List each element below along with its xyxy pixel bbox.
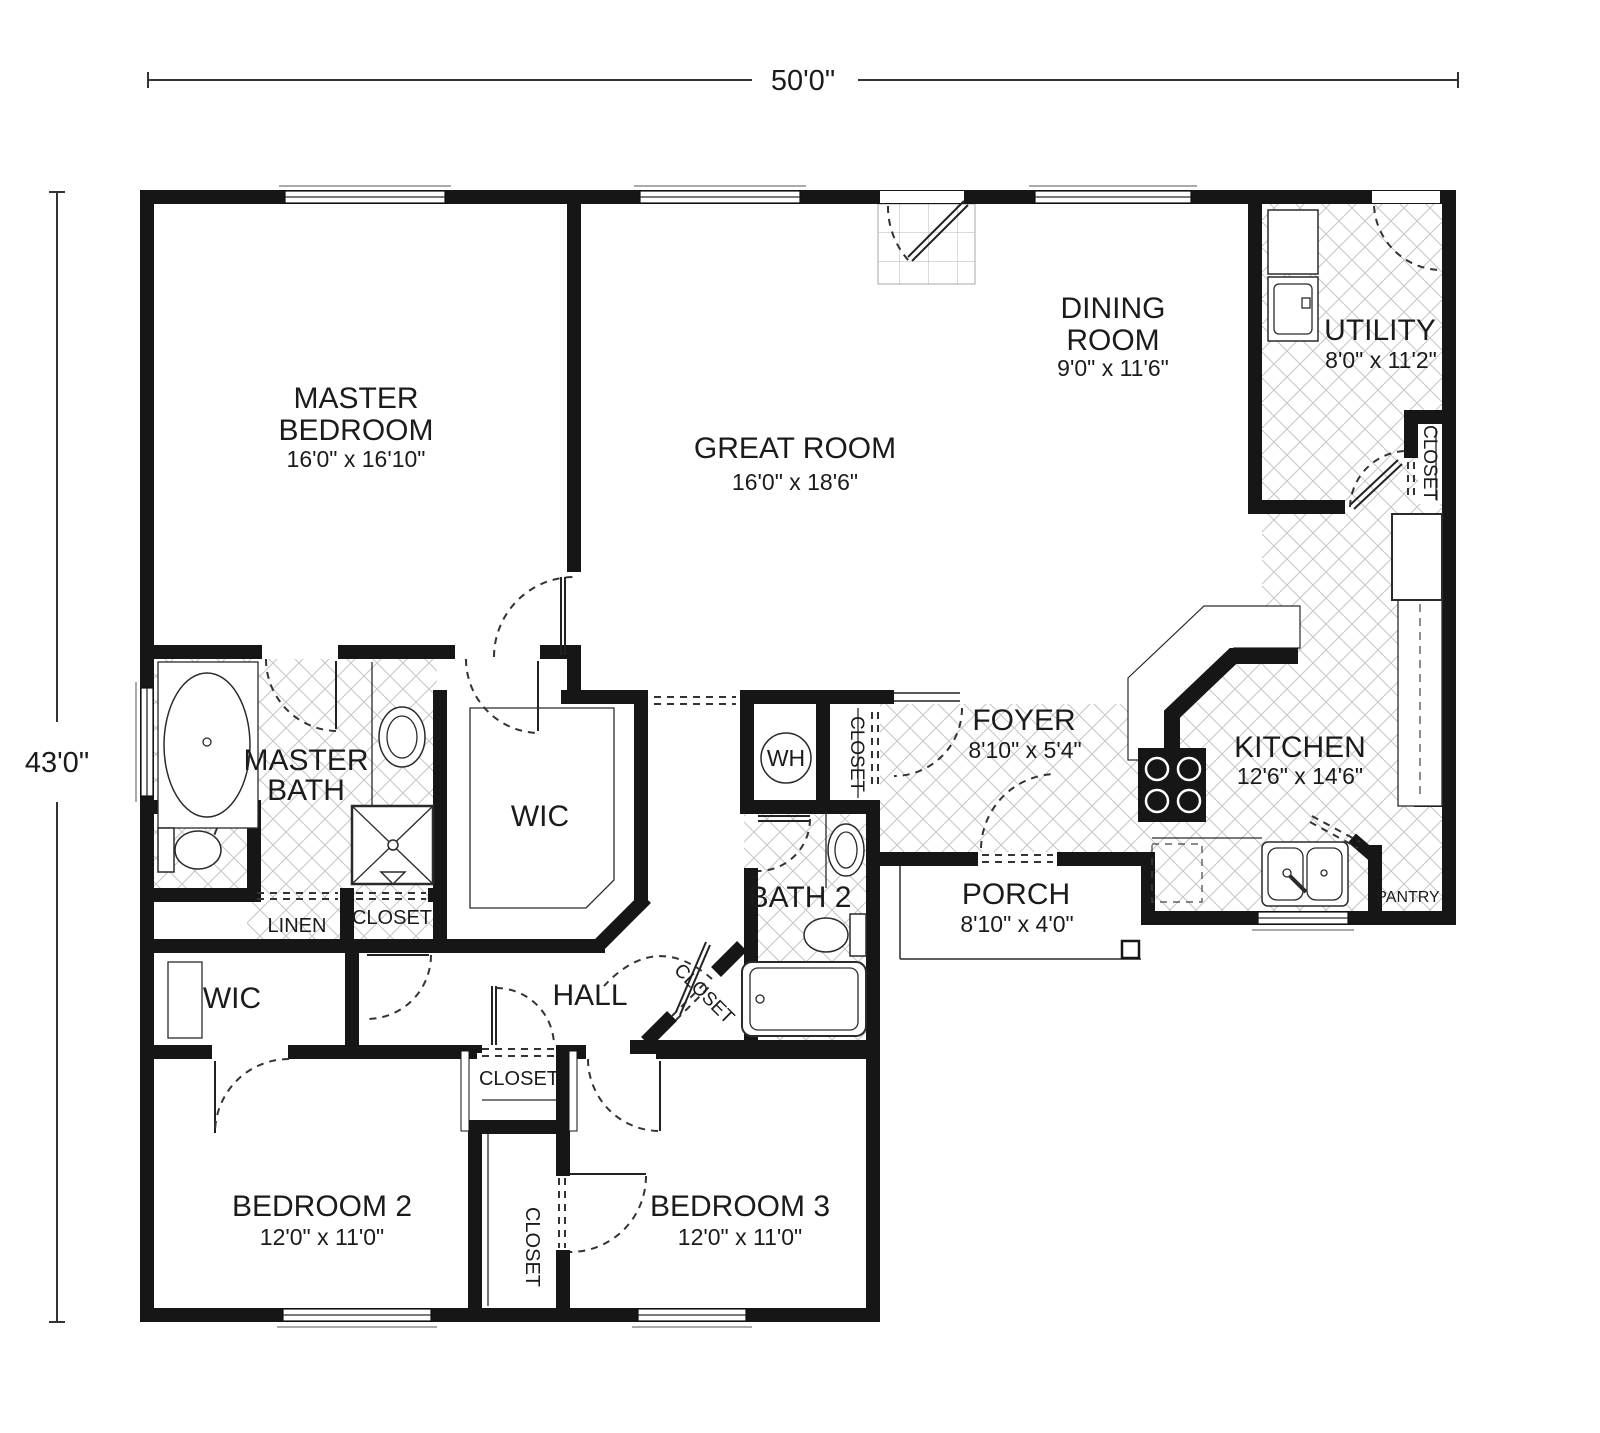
closet-bedroom-label: CLOSET	[521, 1207, 543, 1287]
great-room-label: GREAT ROOM	[694, 432, 896, 465]
kitchen-dims: 12'6" x 14'6"	[1237, 763, 1363, 789]
closet-utility-label: CLOSET	[1419, 425, 1440, 501]
water-heater-label: WH	[767, 745, 805, 771]
bath2-toilet-icon	[804, 918, 848, 952]
closet-hall-label: CLOSET	[670, 960, 739, 1029]
bathtub-icon	[164, 673, 250, 817]
utility-label: UTILITY	[1324, 314, 1436, 347]
pantry-label: PANTRY	[1376, 889, 1440, 906]
dryer-icon	[1268, 277, 1318, 341]
overall-width-dim: 50'0"	[771, 65, 835, 97]
bedroom3-label: BEDROOM 3	[650, 1190, 830, 1223]
bedroom3-dims: 12'0" x 11'0"	[678, 1224, 802, 1250]
utility-dims: 8'0" x 11'2"	[1325, 347, 1437, 373]
window-bedroom3	[632, 1309, 752, 1327]
kitchen-sink-icon	[1262, 842, 1348, 906]
dining-room-dims: 9'0" x 11'6"	[1057, 355, 1169, 381]
wic2-door-swing	[367, 955, 431, 1019]
bedroom3-closet-door-swing	[570, 1176, 646, 1252]
great-room-dims: 16'0" x 18'6"	[732, 469, 858, 495]
window-master-bedroom	[279, 186, 451, 203]
bath2-label: BATH 2	[749, 881, 852, 914]
closet-foyer-label: CLOSET	[846, 716, 867, 792]
master-bedroom-label: MASTER	[293, 382, 418, 415]
bedroom2-dims: 12'0" x 11'0"	[260, 1224, 384, 1250]
wic2-rod	[168, 962, 202, 1038]
overall-height-dim: 43'0"	[25, 747, 89, 779]
window-dining	[1029, 186, 1197, 203]
window-kitchen-sink	[1252, 912, 1354, 930]
porch-post	[1122, 941, 1139, 958]
entry-door-opening	[880, 191, 964, 203]
entry-tile-pad	[878, 204, 975, 284]
bath2-tub-icon	[742, 962, 866, 1036]
linen-label: LINEN	[268, 915, 327, 937]
svg-text:ROOM: ROOM	[1066, 324, 1159, 357]
floor-plan-drawing: 50'0" 43'0" MASTER BEDROOM 16'0" x 16'10…	[0, 0, 1600, 1433]
porch-dims: 8'10" x 4'0"	[960, 911, 1073, 937]
hall-label: HALL	[552, 979, 627, 1012]
wic-label: WIC	[511, 800, 569, 833]
closet-bifold-right	[569, 1051, 577, 1131]
closet-master-label: CLOSET	[352, 907, 432, 929]
floor-plan-page: 50'0" 43'0" MASTER BEDROOM 16'0" x 16'10…	[0, 0, 1600, 1433]
stove-icon	[1138, 748, 1206, 822]
window-bedroom2	[277, 1309, 437, 1327]
bath2-toilet-tank	[850, 914, 866, 956]
svg-text:BEDROOM: BEDROOM	[278, 414, 433, 447]
refrigerator-icon	[1392, 514, 1442, 600]
wic-door-swing	[466, 659, 540, 733]
window-master-bath	[136, 682, 153, 802]
shower-icon	[352, 806, 433, 884]
master-toilet-tank	[158, 828, 174, 872]
utility-rear-door-opening	[1372, 191, 1440, 203]
bedroom2-label: BEDROOM 2	[232, 1190, 412, 1223]
washer-icon	[1268, 210, 1318, 274]
closet-small-label: CLOSET	[479, 1068, 559, 1090]
bedroom3-door-swing	[588, 1059, 660, 1131]
master-bath-label: MASTER	[243, 744, 368, 777]
hall-wic-door-swing	[496, 988, 554, 1046]
closet-bifold-left	[461, 1051, 469, 1131]
foyer-dims: 8'10" x 5'4"	[968, 737, 1081, 763]
kitchen-label: KITCHEN	[1234, 731, 1366, 764]
master-toilet-icon	[175, 831, 221, 869]
dining-room-label: DINING	[1061, 292, 1166, 325]
window-great-room	[634, 186, 806, 203]
foyer-label: FOYER	[972, 704, 1075, 737]
svg-text:BATH: BATH	[267, 774, 345, 807]
wic2-label: WIC	[203, 982, 261, 1015]
bedroom2-door-swing	[215, 1059, 289, 1133]
porch-label: PORCH	[962, 878, 1070, 911]
master-bedroom-dims: 16'0" x 16'10"	[287, 446, 426, 472]
